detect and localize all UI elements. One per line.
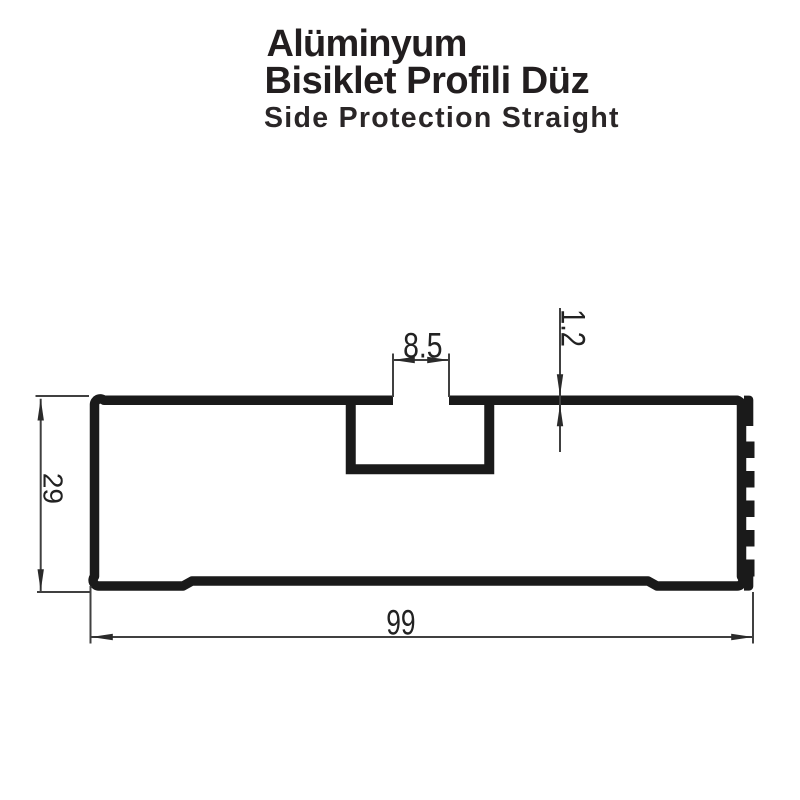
svg-text:99: 99 xyxy=(386,603,415,643)
svg-text:29: 29 xyxy=(38,473,69,504)
svg-text:1.2: 1.2 xyxy=(554,309,593,347)
svg-text:8.5: 8.5 xyxy=(403,326,442,366)
